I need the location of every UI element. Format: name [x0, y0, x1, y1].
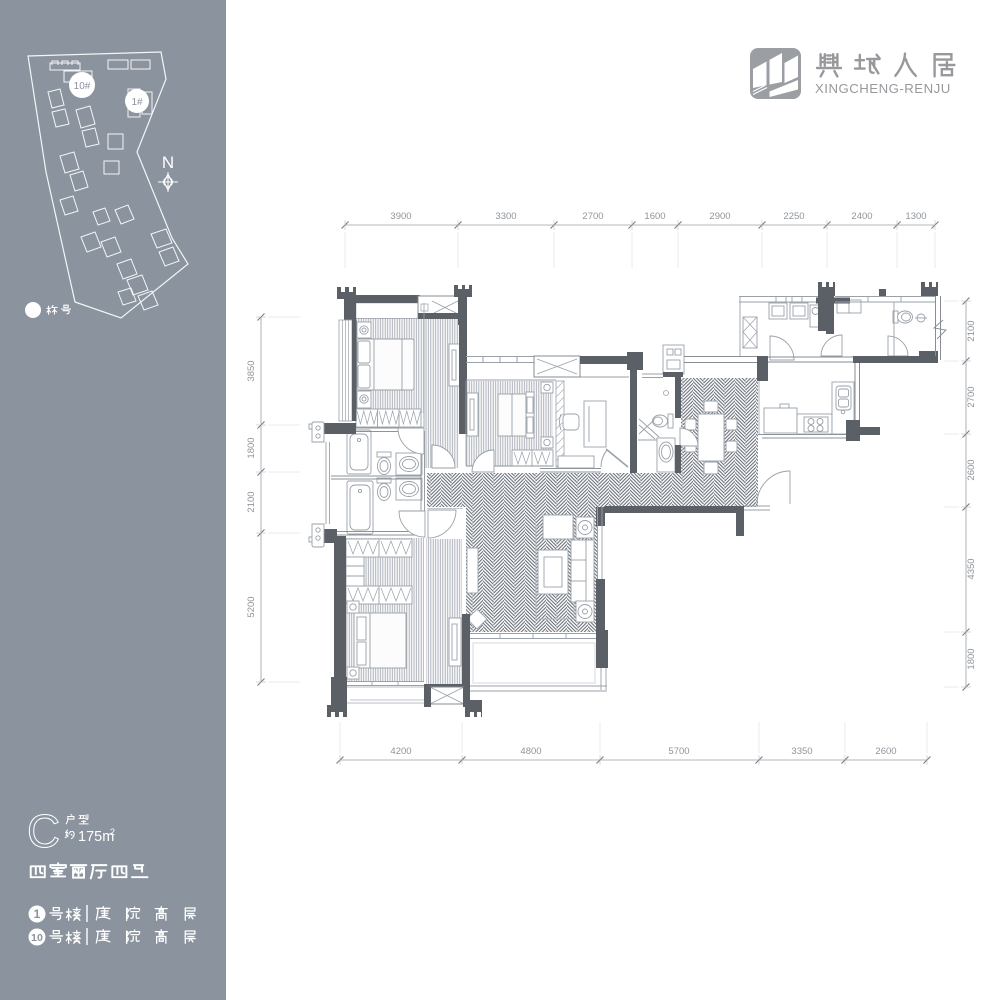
- svg-text:4800: 4800: [520, 746, 541, 757]
- svg-text:1300: 1300: [905, 211, 926, 222]
- svg-text:3850: 3850: [246, 360, 257, 381]
- svg-text:10#: 10#: [74, 81, 91, 92]
- svg-text:N: N: [162, 153, 174, 172]
- svg-text:4200: 4200: [390, 746, 411, 757]
- svg-text:175m: 175m: [78, 829, 114, 845]
- svg-text:1800: 1800: [246, 437, 257, 458]
- svg-text:2100: 2100: [246, 491, 257, 512]
- svg-text:2700: 2700: [966, 386, 977, 407]
- svg-text:1600: 1600: [644, 211, 665, 222]
- svg-text:XINGCHENG-RENJU: XINGCHENG-RENJU: [815, 81, 951, 96]
- svg-text:2100: 2100: [966, 320, 977, 341]
- svg-text:10: 10: [31, 932, 43, 944]
- svg-text:3300: 3300: [495, 211, 516, 222]
- svg-text:2600: 2600: [966, 459, 977, 480]
- svg-text:C: C: [27, 805, 60, 857]
- svg-text:1: 1: [34, 907, 41, 921]
- svg-text:2: 2: [110, 827, 115, 837]
- svg-text:3900: 3900: [390, 211, 411, 222]
- svg-text:2400: 2400: [851, 211, 872, 222]
- svg-text:2900: 2900: [709, 211, 730, 222]
- svg-text:4350: 4350: [966, 558, 977, 579]
- svg-text:1800: 1800: [966, 648, 977, 669]
- svg-text:3350: 3350: [791, 746, 812, 757]
- svg-text:5700: 5700: [668, 746, 689, 757]
- svg-text:2700: 2700: [582, 211, 603, 222]
- svg-text:2250: 2250: [783, 211, 804, 222]
- svg-text:5200: 5200: [246, 596, 257, 617]
- svg-text:1#: 1#: [131, 97, 143, 108]
- svg-text:2600: 2600: [875, 746, 896, 757]
